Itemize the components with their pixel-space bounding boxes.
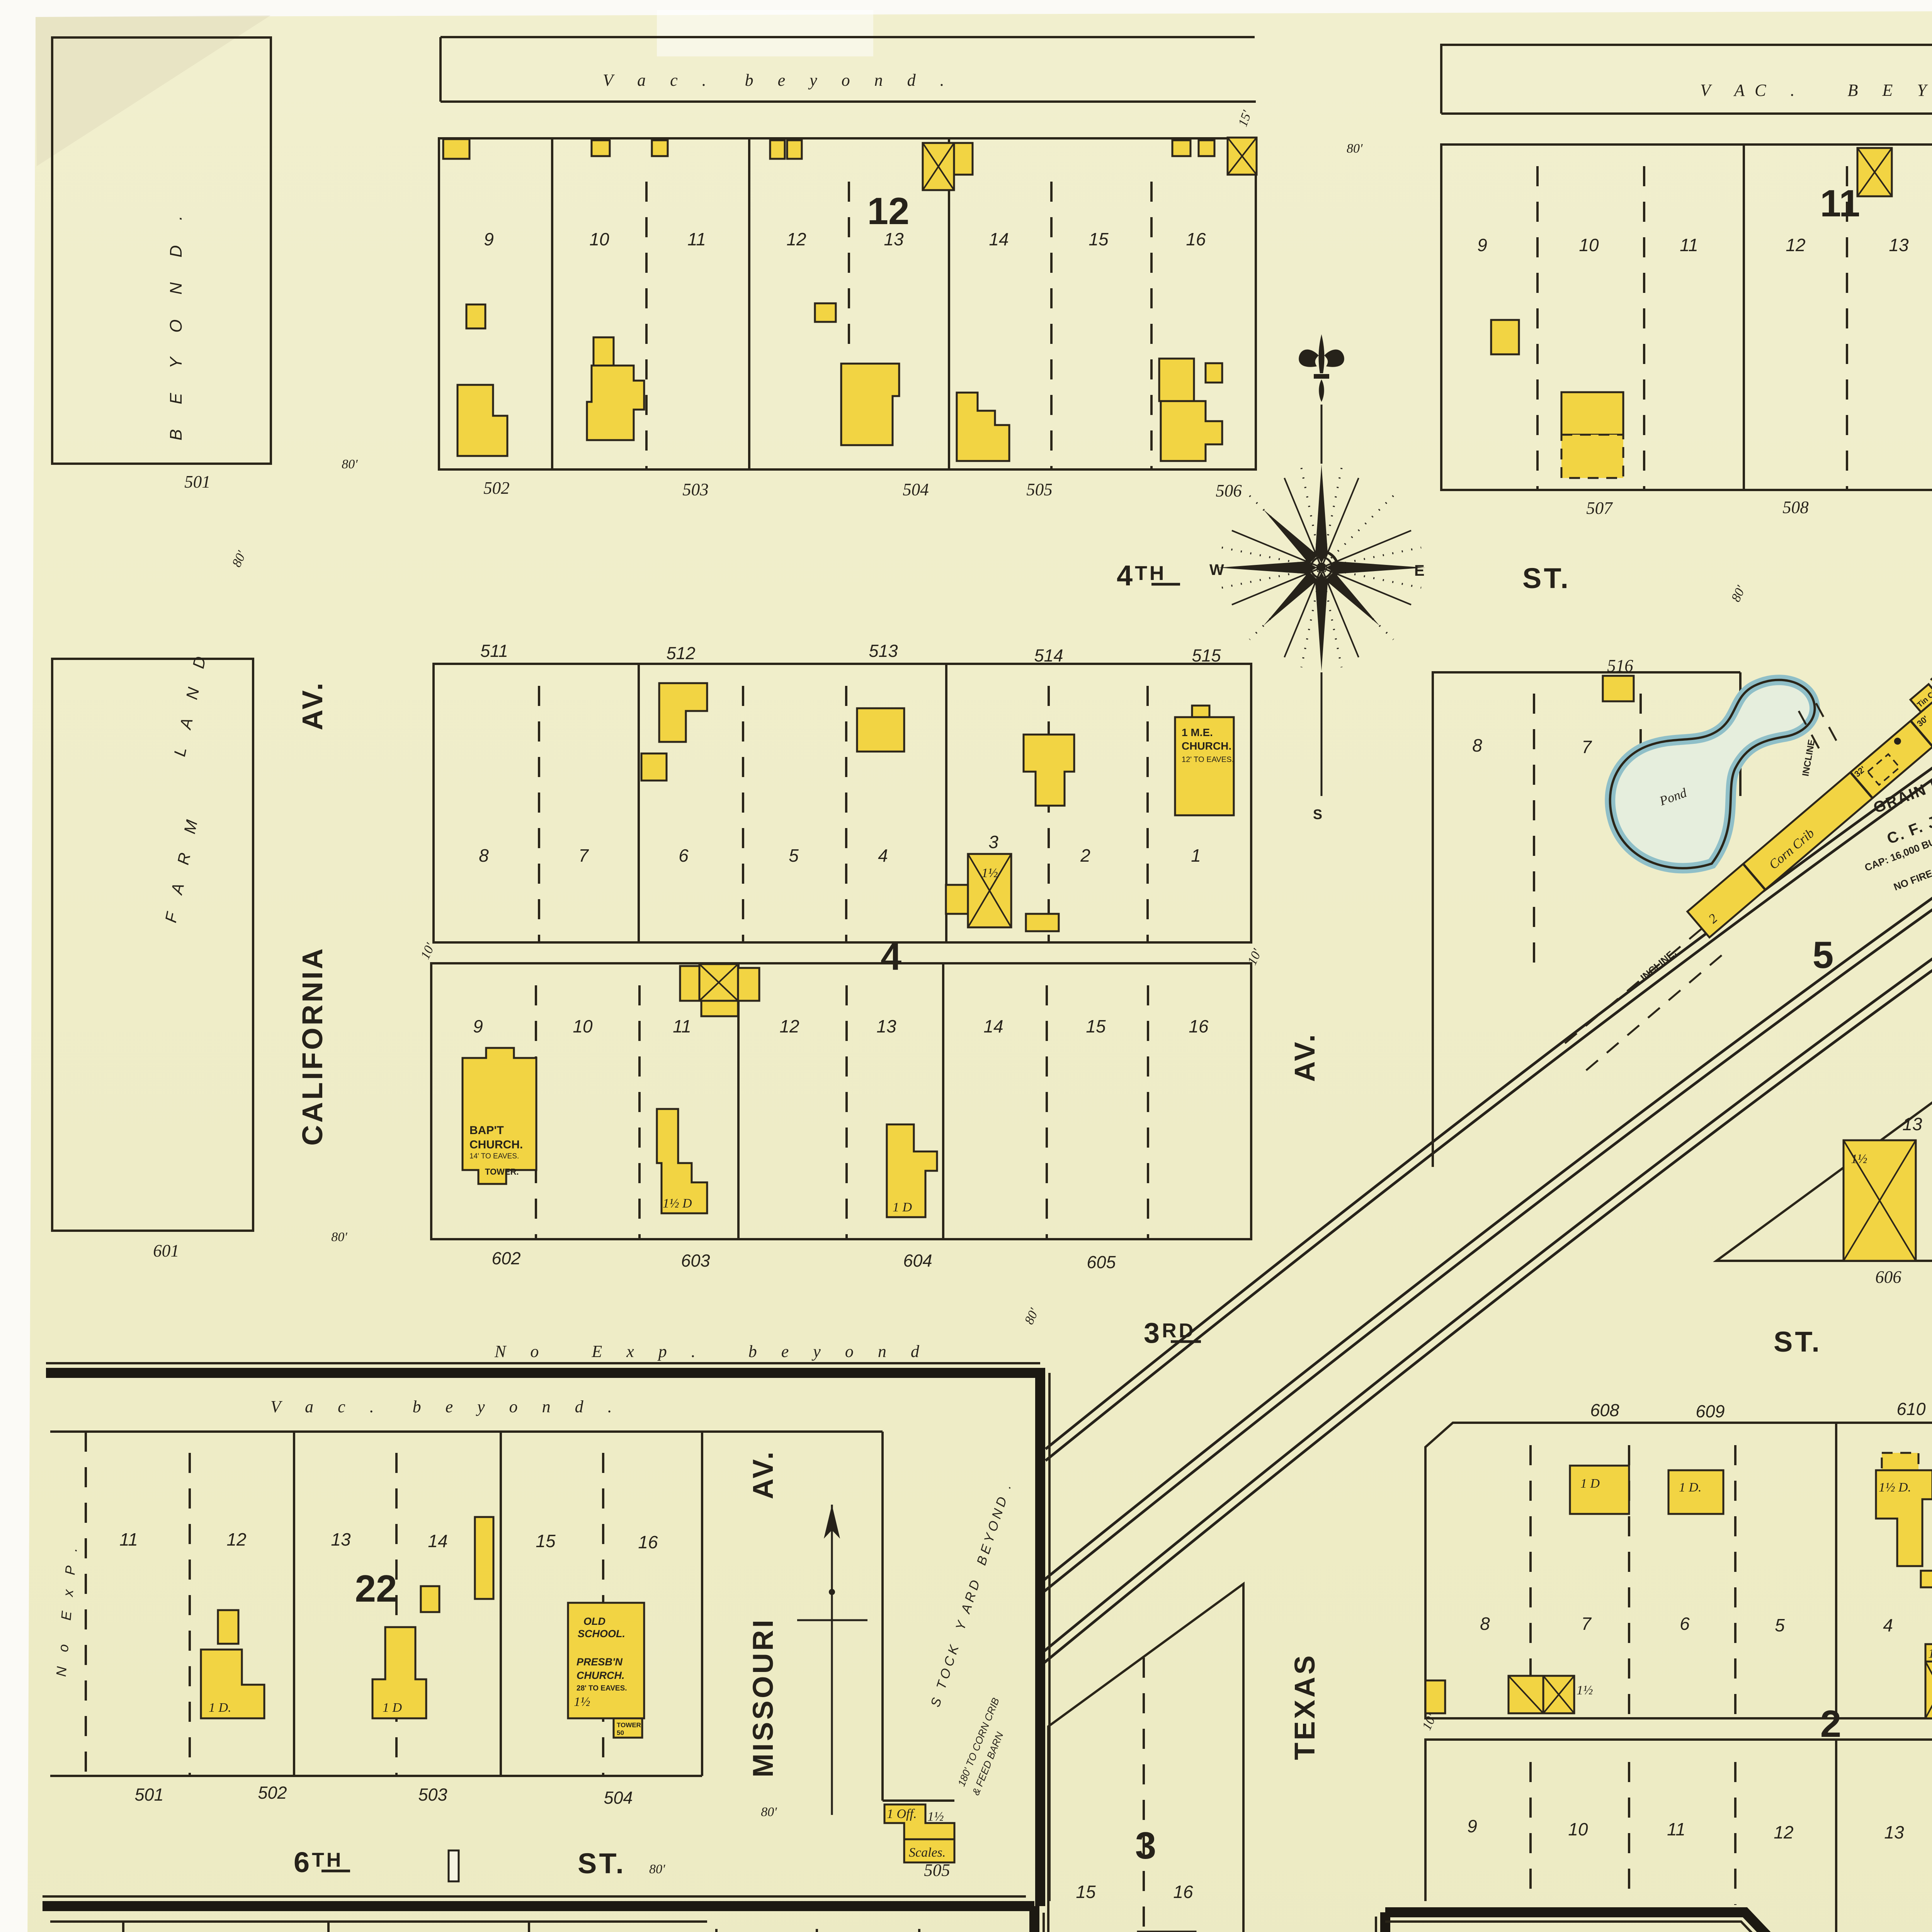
svg-text:80′: 80′: [1347, 141, 1363, 156]
svg-text:AV.: AV.: [296, 680, 328, 730]
svg-text:10: 10: [573, 1016, 593, 1036]
svg-text:504: 504: [604, 1788, 633, 1808]
svg-text:602: 602: [492, 1248, 520, 1268]
svg-text:14: 14: [428, 1531, 447, 1551]
svg-text:16: 16: [1186, 229, 1206, 249]
svg-text:605: 605: [1087, 1252, 1116, 1272]
svg-text:1 M.E.: 1 M.E.: [1182, 726, 1213, 738]
svg-text:13: 13: [1889, 235, 1909, 255]
svg-text:1½: 1½: [927, 1810, 944, 1824]
svg-text:11: 11: [687, 229, 706, 249]
svg-text:16: 16: [1189, 1016, 1209, 1036]
svg-text:512: 512: [666, 643, 695, 663]
svg-text:505: 505: [924, 1861, 950, 1880]
svg-text:502: 502: [483, 478, 510, 498]
svg-text:22: 22: [355, 1567, 397, 1610]
svg-text:CHURCH.: CHURCH.: [469, 1138, 523, 1151]
svg-text:12' TO EAVES.: 12' TO EAVES.: [1182, 755, 1234, 764]
svg-text:10: 10: [1568, 1819, 1588, 1839]
svg-text:80′: 80′: [342, 457, 358, 471]
svg-text:B E Y O N D .: B E Y O N D .: [167, 206, 185, 440]
svg-text:S: S: [1313, 806, 1322, 822]
svg-text:TOWER: TOWER: [617, 1721, 641, 1729]
svg-text:9: 9: [473, 1016, 483, 1036]
svg-text:503: 503: [418, 1785, 447, 1804]
svg-text:1½ D: 1½ D: [663, 1196, 692, 1211]
svg-text:10: 10: [1579, 235, 1599, 255]
svg-text:7: 7: [578, 845, 589, 866]
svg-text:1 D: 1 D: [893, 1200, 912, 1214]
svg-text:3: 3: [988, 832, 998, 852]
svg-text:12: 12: [226, 1529, 246, 1549]
svg-text:11: 11: [1667, 1819, 1685, 1839]
svg-text:504: 504: [903, 480, 929, 499]
svg-text:5: 5: [789, 845, 799, 866]
svg-text:1½: 1½: [1577, 1683, 1593, 1697]
svg-text:15: 15: [1088, 229, 1109, 249]
svg-text:V AC . B E Y O N D: V AC . B E Y O N D: [1700, 81, 1932, 100]
svg-text:16: 16: [1173, 1882, 1193, 1902]
svg-text:4: 4: [878, 845, 888, 866]
svg-text:1½: 1½: [574, 1695, 590, 1709]
svg-text:13: 13: [1884, 1822, 1904, 1842]
svg-text:608: 608: [1590, 1400, 1619, 1420]
svg-text:502: 502: [258, 1783, 287, 1803]
svg-text:11: 11: [119, 1529, 138, 1549]
svg-text:2: 2: [1080, 845, 1090, 866]
svg-text:6: 6: [1680, 1614, 1690, 1634]
svg-text:E: E: [1414, 562, 1425, 579]
svg-text:13: 13: [1902, 1114, 1922, 1134]
svg-text:1 D: 1 D: [1580, 1476, 1600, 1491]
svg-text:15: 15: [536, 1531, 556, 1551]
svg-text:15: 15: [1076, 1882, 1096, 1902]
svg-text:4: 4: [881, 935, 902, 978]
svg-text:11: 11: [673, 1016, 691, 1036]
svg-text:12: 12: [779, 1016, 799, 1036]
svg-text:16: 16: [638, 1532, 658, 1552]
svg-text:V a c . b e y o n d .: V a c . b e y o n d .: [270, 1397, 622, 1416]
svg-text:80′: 80′: [331, 1230, 347, 1244]
svg-text:14' TO EAVES.: 14' TO EAVES.: [469, 1152, 519, 1160]
svg-text:9: 9: [484, 229, 494, 249]
svg-text:ST.: ST.: [1522, 562, 1571, 594]
svg-text:Scales.: Scales.: [909, 1845, 946, 1860]
svg-text:610: 610: [1896, 1399, 1925, 1419]
svg-text:TOWER.: TOWER.: [485, 1167, 519, 1177]
svg-text:606: 606: [1875, 1267, 1901, 1287]
svg-text:80′: 80′: [761, 1805, 777, 1819]
svg-text:5: 5: [1775, 1615, 1785, 1635]
svg-text:TEXAS: TEXAS: [1289, 1653, 1321, 1760]
svg-text:503: 503: [682, 480, 709, 499]
svg-text:514: 514: [1034, 646, 1063, 665]
svg-text:AV.: AV.: [1289, 1032, 1321, 1082]
svg-text:CHURCH.: CHURCH.: [577, 1670, 625, 1681]
svg-text:604: 604: [903, 1251, 932, 1270]
svg-text:1½: 1½: [1851, 1152, 1867, 1166]
svg-text:7: 7: [1582, 737, 1592, 757]
svg-text:13: 13: [331, 1529, 351, 1549]
svg-text:6: 6: [679, 845, 689, 866]
svg-text:9: 9: [1467, 1816, 1477, 1836]
svg-text:8: 8: [1472, 735, 1482, 755]
svg-text:515: 515: [1192, 646, 1221, 665]
svg-text:12: 12: [1786, 235, 1805, 255]
svg-text:513: 513: [869, 641, 898, 661]
svg-text:OLD: OLD: [583, 1616, 605, 1627]
svg-text:1½ D.: 1½ D.: [1879, 1480, 1911, 1495]
svg-text:601: 601: [153, 1241, 179, 1260]
svg-text:ST.: ST.: [1774, 1326, 1822, 1358]
svg-text:ST.: ST.: [578, 1847, 626, 1879]
svg-text:603: 603: [681, 1251, 710, 1270]
svg-text:CALIFORNIA: CALIFORNIA: [296, 946, 328, 1146]
svg-text:4: 4: [1883, 1615, 1893, 1635]
svg-text:501: 501: [134, 1785, 163, 1804]
svg-text:10: 10: [589, 229, 609, 249]
svg-text:80′: 80′: [649, 1862, 665, 1876]
svg-text:28' TO EAVES.: 28' TO EAVES.: [577, 1684, 627, 1692]
svg-text:1 D.: 1 D.: [1679, 1480, 1702, 1495]
svg-text:15: 15: [1086, 1016, 1106, 1036]
svg-text:W: W: [1209, 561, 1224, 578]
svg-text:PRESB'N: PRESB'N: [577, 1656, 622, 1668]
svg-text:501: 501: [184, 472, 211, 492]
svg-text:11: 11: [1820, 182, 1860, 224]
svg-text:1 Off.: 1 Off.: [887, 1807, 917, 1821]
svg-text:9: 9: [1477, 235, 1487, 255]
svg-text:507: 507: [1586, 498, 1613, 518]
svg-text:1: 1: [1928, 1646, 1932, 1661]
svg-text:1½: 1½: [981, 866, 998, 880]
svg-text:12: 12: [786, 229, 806, 249]
svg-text:AV.: AV.: [747, 1449, 779, 1499]
svg-text:3: 3: [1135, 1824, 1156, 1867]
svg-text:BAP'T: BAP'T: [469, 1124, 504, 1137]
svg-text:N o E x p . b e y o n d: N o E x p . b e y o n d: [494, 1342, 929, 1361]
svg-text:12: 12: [867, 190, 909, 232]
svg-text:13: 13: [876, 1016, 896, 1036]
svg-text:516: 516: [1607, 656, 1633, 675]
svg-text:CHURCH.: CHURCH.: [1182, 740, 1231, 752]
svg-text:1 D.: 1 D.: [209, 1701, 231, 1715]
svg-text:14: 14: [983, 1016, 1003, 1036]
svg-text:V a c . b e y o n d .: V a c . b e y o n d .: [603, 71, 954, 90]
svg-text:508: 508: [1782, 498, 1809, 517]
svg-text:MISSOURI: MISSOURI: [747, 1617, 779, 1777]
svg-text:8: 8: [479, 845, 489, 866]
svg-text:511: 511: [480, 641, 508, 661]
svg-text:12: 12: [1774, 1822, 1793, 1842]
svg-text:1: 1: [1191, 845, 1201, 866]
svg-text:505: 505: [1026, 480, 1053, 499]
svg-text:5: 5: [1813, 934, 1834, 976]
svg-text:1 D: 1 D: [383, 1701, 402, 1715]
svg-text:7: 7: [1581, 1614, 1592, 1634]
svg-text:11: 11: [1680, 235, 1698, 255]
svg-text:609: 609: [1696, 1401, 1725, 1421]
svg-text:13: 13: [884, 229, 904, 249]
svg-text:SCHOOL.: SCHOOL.: [578, 1628, 625, 1639]
svg-text:50: 50: [617, 1729, 624, 1736]
svg-text:506: 506: [1216, 481, 1242, 500]
svg-text:8: 8: [1480, 1614, 1490, 1634]
svg-text:14: 14: [989, 229, 1009, 249]
